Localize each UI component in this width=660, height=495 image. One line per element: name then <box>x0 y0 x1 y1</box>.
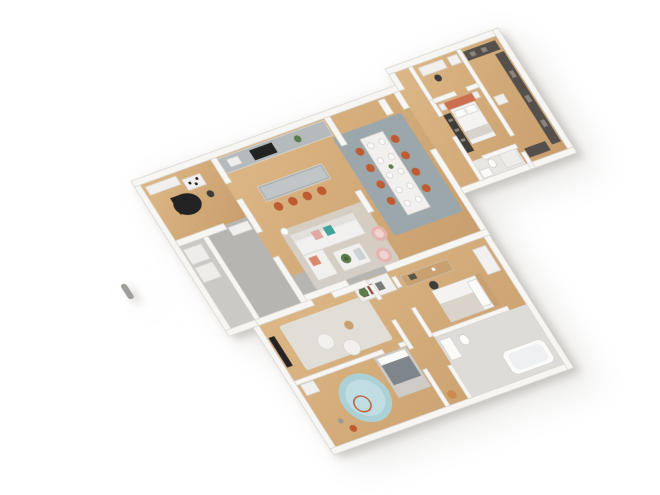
floor-plan-render <box>0 0 660 495</box>
floor-plan-canvas <box>0 0 660 495</box>
